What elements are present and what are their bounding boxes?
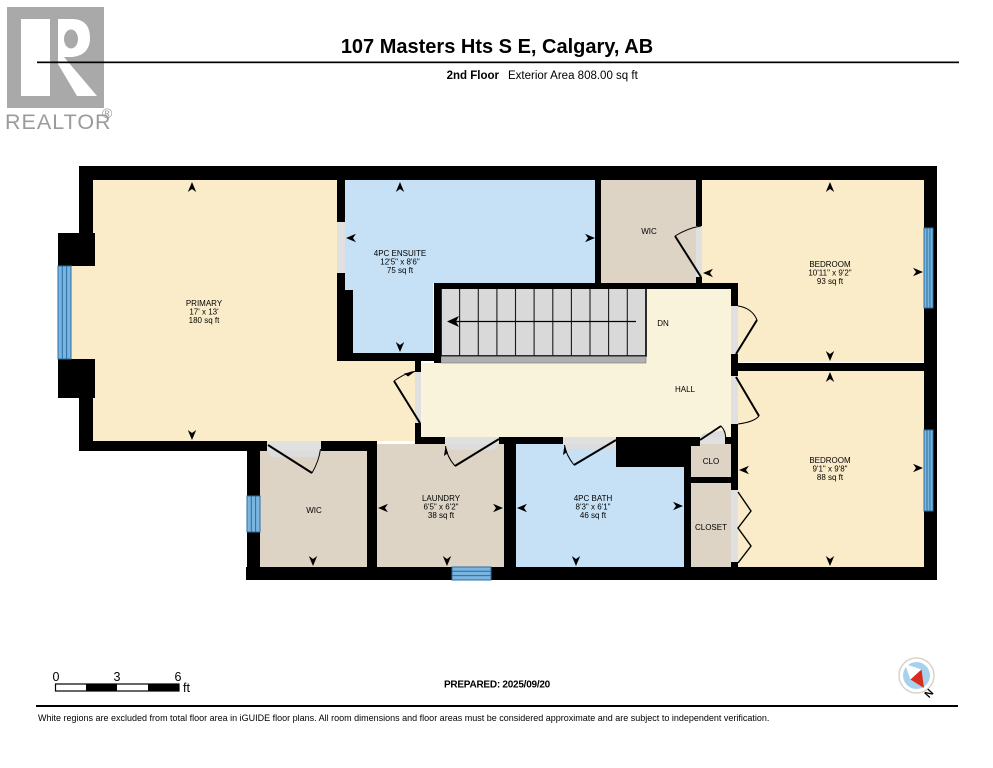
svg-text:Exterior Area 808.00 sq ft: Exterior Area 808.00 sq ft [508, 70, 639, 82]
svg-text:38 sq ft: 38 sq ft [428, 511, 455, 520]
svg-text:3: 3 [114, 670, 121, 684]
svg-text:ft: ft [183, 681, 190, 695]
svg-text:DN: DN [657, 319, 669, 328]
svg-text:93 sq ft: 93 sq ft [817, 277, 844, 286]
svg-text:88 sq ft: 88 sq ft [817, 473, 844, 482]
svg-text:HALL: HALL [675, 385, 696, 394]
svg-text:107 Masters Hts S E, Calgary,: 107 Masters Hts S E, Calgary, AB [341, 36, 653, 58]
svg-text:180 sq ft: 180 sq ft [189, 316, 220, 325]
svg-text:6: 6 [175, 670, 182, 684]
svg-text:CLOSET: CLOSET [695, 523, 727, 532]
svg-text:46 sq ft: 46 sq ft [580, 511, 607, 520]
svg-text:REALTOR: REALTOR [5, 110, 112, 134]
svg-text:PREPARED: 2025/09/20: PREPARED: 2025/09/20 [444, 680, 551, 691]
svg-text:WIC: WIC [306, 506, 322, 515]
svg-text:White regions are excluded fro: White regions are excluded from total fl… [38, 713, 769, 723]
svg-text:2nd Floor: 2nd Floor [447, 70, 500, 82]
svg-text:0: 0 [53, 670, 60, 684]
svg-text:WIC: WIC [641, 227, 657, 236]
svg-text:CLO: CLO [703, 457, 719, 466]
svg-text:®: ® [102, 105, 113, 121]
svg-text:75 sq ft: 75 sq ft [387, 266, 414, 275]
